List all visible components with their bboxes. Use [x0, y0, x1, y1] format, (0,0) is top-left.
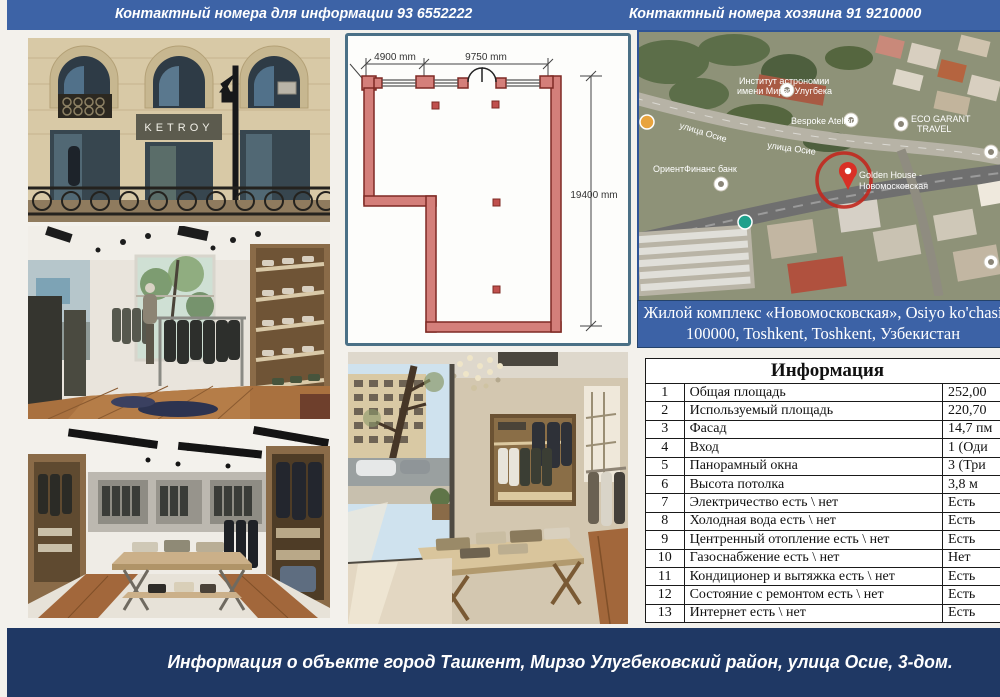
row-number: 4 [646, 439, 685, 457]
row-label: Холодная вода есть \ нет [684, 512, 942, 530]
shoe-shelves [250, 244, 330, 404]
table-row: 1Общая площадь252,00 [646, 384, 1000, 402]
address-line-2: 100000, Toshkent, Toshkent, Узбекистан [686, 324, 960, 345]
row-label: Центренный отопление есть \ нет [684, 531, 942, 549]
photo-interior-salesfloor [28, 424, 330, 618]
table-row: 8Холодная вода есть \ нетЕсть [646, 512, 1000, 530]
chair [300, 394, 330, 419]
row-value: 220,70 [943, 402, 1000, 420]
plan-walls [362, 76, 561, 332]
address-caption: Жилой комплекс «Новомосковская», Osiyo k… [637, 300, 1000, 348]
footer-object-info-band: Информация о объекте город Ташкент, Мирз… [7, 628, 1000, 697]
alcove [584, 386, 620, 482]
row-number: 7 [646, 494, 685, 512]
row-label: Интернет есть \ нет [684, 604, 942, 622]
dim-side-label: 19400 mm [570, 190, 617, 201]
street-window [348, 364, 452, 564]
row-label: Состояние с ремонтом есть \ нет [684, 586, 942, 604]
contact-owner-text: Контактный номера хозяина 91 9210000 [629, 5, 921, 22]
table-title: Информация [646, 359, 1000, 384]
map-label-bank: ОриентФинанс банк [653, 164, 737, 174]
row-number: 13 [646, 604, 685, 622]
row-number: 12 [646, 586, 685, 604]
table-row: 12Состояние с ремонтом есть \ нетЕсть [646, 586, 1000, 604]
map-label-eco-1: ECO GARANT [911, 114, 971, 124]
row-value: Есть [943, 512, 1000, 530]
table-row: 9Центренный отопление есть \ нетЕсть [646, 531, 1000, 549]
plan-columns [432, 101, 500, 293]
row-number: 11 [646, 567, 685, 585]
dimension-lines [350, 58, 602, 331]
photo-interior-window-view [348, 352, 628, 624]
table-row: 7Электричество есть \ нетЕсть [646, 494, 1000, 512]
store-sign: KETROY [136, 114, 222, 140]
table-row: 5Панорамный окна3 (Три [646, 457, 1000, 475]
row-value: 1 (Оди [943, 439, 1000, 457]
store-sign-text: KETROY [144, 122, 213, 134]
row-label: Общая площадь [684, 384, 942, 402]
poi-teal-icon [738, 215, 752, 229]
interior-salesfloor-illustration [28, 424, 330, 618]
contact-info-text: Контактный номера для информации 93 6552… [115, 5, 472, 22]
row-value: Есть [943, 531, 1000, 549]
row-value: Есть [943, 604, 1000, 622]
map-label-pin-1: Golden House - [859, 170, 922, 180]
coat-rack-left [28, 296, 86, 404]
map-label-institute-2: имени Мирзо Улугбека [737, 86, 832, 96]
interior-racks-illustration [28, 226, 330, 419]
row-number: 2 [646, 402, 685, 420]
header-contact-band: Контактный номера для информации 93 6552… [7, 0, 1000, 30]
map-label-eco-2: TRAVEL [917, 124, 951, 134]
row-label: Высота потолка [684, 475, 942, 493]
side-coat-rack [586, 468, 626, 526]
row-value: 14,7 пм [943, 420, 1000, 438]
plan-door [468, 68, 496, 82]
row-number: 10 [646, 549, 685, 567]
row-number: 3 [646, 420, 685, 438]
dim-left-label: 4900 mm [374, 52, 416, 63]
table-row: 10Газоснабжение есть \ нетНет [646, 549, 1000, 567]
ac-unit [278, 82, 296, 94]
table-row: 4Вход1 (Оди [646, 439, 1000, 457]
property-info-table: Информация 1Общая площадь252,00 2Использ… [645, 358, 1000, 623]
map-label-pin-2: Новомосковская [859, 181, 928, 191]
table-row: 3Фасад14,7 пм [646, 420, 1000, 438]
facade-illustration: KETROY [28, 38, 330, 222]
location-map: Институт астрономии имени Мирзо Улугбека… [637, 30, 1000, 302]
floor-plan-drawing: 4900 mm 9750 mm 19400 mm [348, 36, 628, 343]
row-label: Газоснабжение есть \ нет [684, 549, 942, 567]
table-row: 11Кондиционер и вытяжка есть \ нетЕсть [646, 567, 1000, 585]
row-label: Панорамный окна [684, 457, 942, 475]
row-value: Есть [943, 586, 1000, 604]
table-title-row: Информация [646, 359, 1000, 384]
row-label: Используемый площадь [684, 402, 942, 420]
row-number: 9 [646, 531, 685, 549]
dim-top-label: 9750 mm [465, 52, 507, 63]
floor-plan-panel: 4900 mm 9750 mm 19400 mm [345, 33, 631, 346]
poi-cafe-icon [640, 115, 654, 129]
photo-storefront-facade: KETROY [28, 38, 330, 222]
row-label: Кондиционер и вытяжка есть \ нет [684, 567, 942, 585]
row-value: 3,8 м [943, 475, 1000, 493]
row-value: Есть [943, 494, 1000, 512]
map-label-institute-1: Институт астрономии [739, 76, 829, 86]
table-row: 2Используемый площадь220,70 [646, 402, 1000, 420]
row-number: 1 [646, 384, 685, 402]
table-row: 6Высота потолка3,8 м [646, 475, 1000, 493]
row-number: 8 [646, 512, 685, 530]
footer-text: Информация о объекте город Ташкент, Мирз… [61, 652, 953, 673]
row-value: Нет [943, 549, 1000, 567]
row-value: 252,00 [943, 384, 1000, 402]
table-row: 13Интернет есть \ нетЕсть [646, 604, 1000, 622]
photo-interior-racks [28, 226, 330, 419]
row-label: Фасад [684, 420, 942, 438]
row-number: 5 [646, 457, 685, 475]
interior-window-illustration [348, 352, 628, 624]
satellite-map: Институт астрономии имени Мирзо Улугбека… [639, 32, 1000, 296]
row-value: Есть [943, 567, 1000, 585]
row-value: 3 (Три [943, 457, 1000, 475]
row-number: 6 [646, 475, 685, 493]
clothes-shelf-unit [490, 414, 576, 506]
row-label: Вход [684, 439, 942, 457]
row-label: Электричество есть \ нет [684, 494, 942, 512]
address-line-1: Жилой комплекс «Новомосковская», Osiyo k… [643, 303, 1000, 324]
map-label-bespoke: Bespoke Atelier [791, 116, 854, 126]
